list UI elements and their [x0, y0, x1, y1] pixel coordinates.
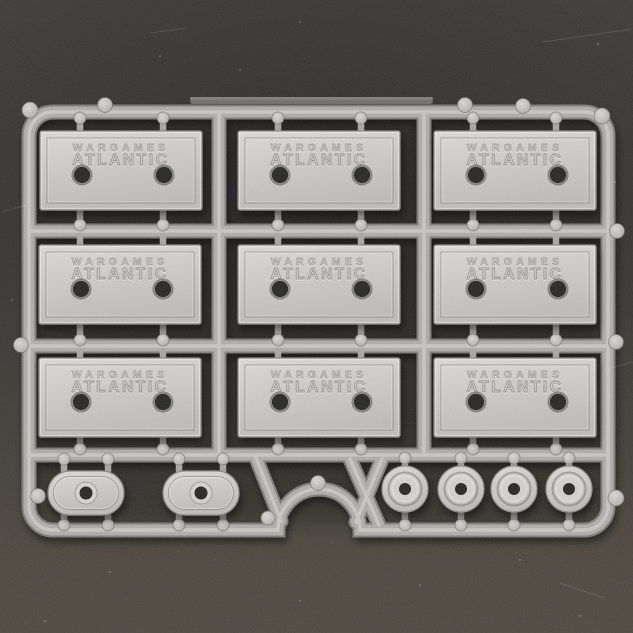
sprue: WARGAMES WARGAMES ATLANTIC ATLANTIC [0, 0, 633, 633]
photo-backdrop: WARGAMES WARGAMES ATLANTIC ATLANTIC [0, 0, 633, 633]
film-grain-overlay [0, 0, 633, 633]
